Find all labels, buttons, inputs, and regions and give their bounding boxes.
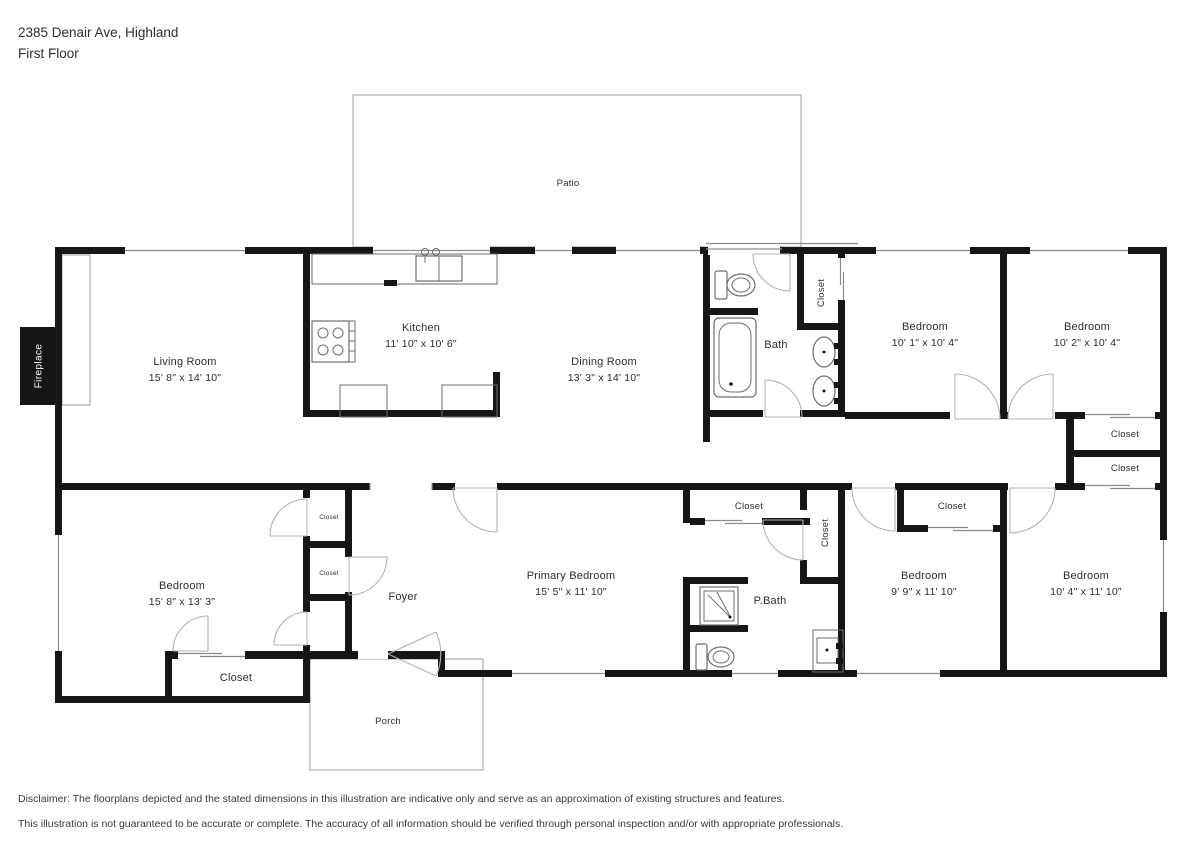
porch-label: Porch bbox=[375, 715, 401, 729]
hall-closet-label: Closet bbox=[819, 519, 833, 547]
foyer-label: Foyer bbox=[388, 589, 417, 606]
disclaimer-line2: This illustration is not guaranteed to b… bbox=[18, 818, 843, 830]
bathtub-icon bbox=[714, 318, 756, 397]
double-vanity-icon bbox=[813, 337, 841, 406]
small-closet1-label: Closet bbox=[319, 513, 339, 523]
fireplace-label: Fireplace bbox=[32, 344, 47, 389]
closet-right2-label: Closet bbox=[1111, 462, 1139, 476]
closet-bottomleft-label: Closet bbox=[220, 670, 252, 687]
primary-bedroom-label: Primary Bedroom15' 5" x 11' 10" bbox=[527, 568, 616, 600]
small-closet2-label: Closet bbox=[319, 569, 339, 579]
toilet-icon bbox=[715, 271, 755, 299]
primary-closet-label: Closet bbox=[735, 500, 763, 514]
bath-label: Bath bbox=[764, 337, 787, 354]
kitchen-label: Kitchen11' 10" x 10' 6" bbox=[385, 320, 457, 352]
bedroom-topright-label: Bedroom10' 2" x 10' 4" bbox=[1054, 319, 1120, 351]
address-title: 2385 Denair Ave, Highland bbox=[18, 22, 178, 43]
closet-right1-label: Closet bbox=[1111, 428, 1139, 442]
walls-layer bbox=[55, 247, 1167, 703]
shower-icon bbox=[700, 587, 738, 625]
toilet-icon-pbath bbox=[696, 644, 734, 670]
primary-bath-label: P.Bath bbox=[754, 593, 787, 610]
floorplan-drawing bbox=[0, 0, 1193, 844]
hearth-outline bbox=[62, 255, 90, 405]
bedroom-bottomleft-label: Bedroom15' 8" x 13' 3" bbox=[149, 578, 215, 610]
bath-closet-label: Closet bbox=[815, 279, 829, 307]
closet-bottommid-label: Closet bbox=[938, 500, 966, 514]
patio-label: Patio bbox=[557, 177, 580, 191]
kitchen-counter bbox=[312, 254, 497, 284]
bedroom-bottomright-label: Bedroom10' 4" x 11' 10" bbox=[1050, 568, 1122, 600]
dishwasher-mark bbox=[384, 280, 397, 286]
patio-outline bbox=[353, 95, 801, 247]
disclaimer-line1: Disclaimer: The floorplans depicted and … bbox=[18, 793, 785, 805]
living-room-label: Living Room15' 8" x 14' 10" bbox=[149, 354, 221, 386]
plan-header: 2385 Denair Ave, Highland First Floor bbox=[18, 22, 178, 64]
outdoor-outlines bbox=[62, 95, 801, 770]
floorplan-page: 2385 Denair Ave, Highland First Floor Pa… bbox=[0, 0, 1193, 844]
stove-icon bbox=[312, 321, 355, 362]
bedroom-bottommid-label: Bedroom9' 9" x 11' 10" bbox=[891, 568, 957, 600]
floor-subtitle: First Floor bbox=[18, 43, 178, 64]
bedroom-topleft-label: Bedroom10' 1" x 10' 4" bbox=[892, 319, 958, 351]
dining-room-label: Dining Room13' 3" x 14' 10" bbox=[568, 354, 640, 386]
